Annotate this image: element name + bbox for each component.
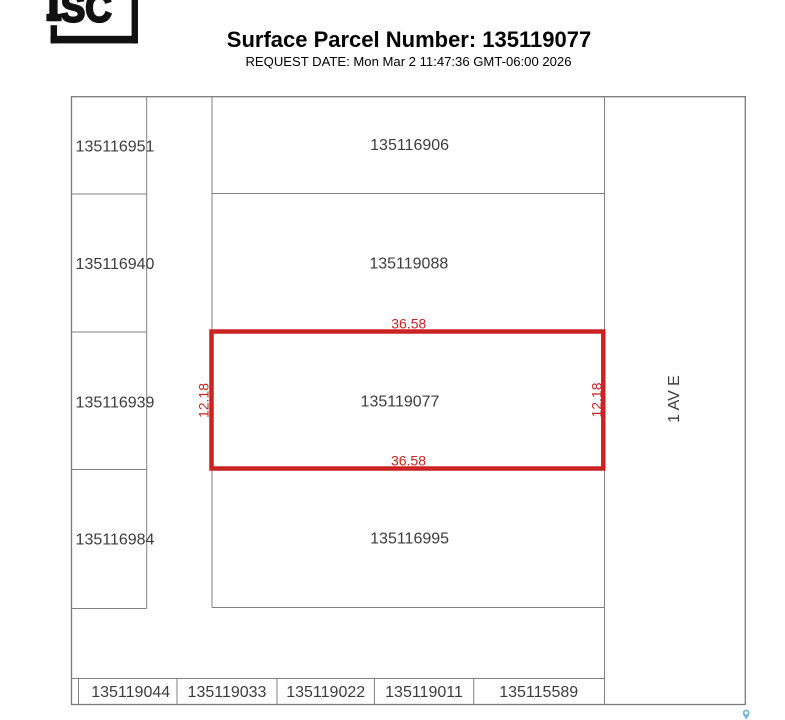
svg-text:135119077: 135119077 <box>361 393 440 410</box>
svg-text:135119033: 135119033 <box>188 684 267 701</box>
svg-text:12.18: 12.18 <box>589 382 605 417</box>
svg-text:135116939: 135116939 <box>76 395 155 412</box>
svg-text:12.18: 12.18 <box>195 383 211 418</box>
svg-text:135116984: 135116984 <box>76 532 155 549</box>
svg-text:36.58: 36.58 <box>391 453 426 469</box>
svg-text:1 AV E: 1 AV E <box>666 375 683 423</box>
svg-text:135116995: 135116995 <box>370 530 449 547</box>
svg-text:135116940: 135116940 <box>76 256 155 273</box>
svg-text:135116951: 135116951 <box>76 139 155 156</box>
svg-text:135119011: 135119011 <box>385 684 463 701</box>
svg-text:36.58: 36.58 <box>391 315 426 331</box>
svg-text:135119022: 135119022 <box>286 684 365 701</box>
svg-text:135119088: 135119088 <box>369 256 448 273</box>
svg-text:135119044: 135119044 <box>91 684 170 701</box>
svg-text:135115589: 135115589 <box>499 684 578 701</box>
svg-text:135116906: 135116906 <box>370 137 449 154</box>
